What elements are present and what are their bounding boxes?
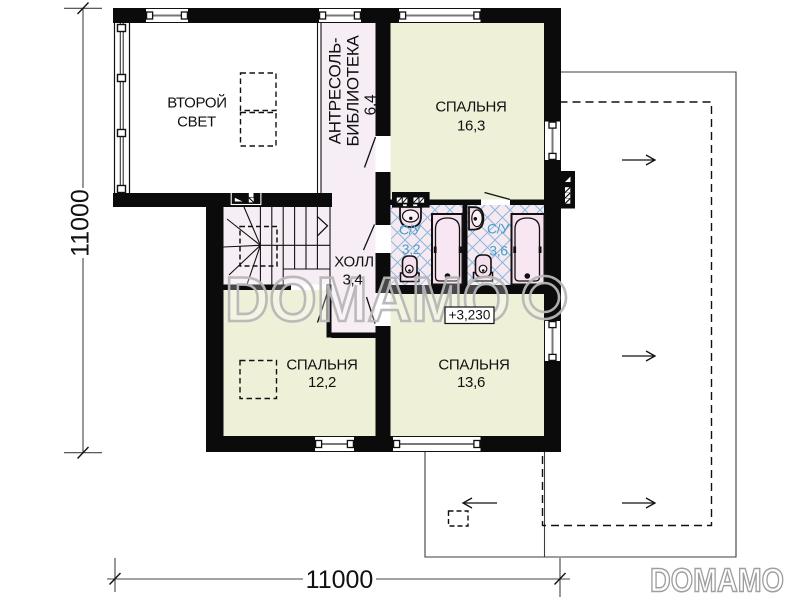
svg-text:3,6: 3,6 <box>489 243 508 259</box>
svg-text:6,4: 6,4 <box>363 94 380 115</box>
svg-text:DOMAMO: DOMAMO <box>650 562 784 599</box>
svg-text:3,2: 3,2 <box>402 241 421 257</box>
svg-text:DOMAMO: DOMAMO <box>225 265 510 335</box>
svg-text:С/У: С/У <box>399 222 421 238</box>
svg-text:12,2: 12,2 <box>308 374 336 391</box>
svg-text:СПАЛЬНЯ: СПАЛЬНЯ <box>435 99 506 116</box>
svg-text:АНТРЕСОЛЬ-: АНТРЕСОЛЬ- <box>326 38 345 145</box>
svg-text:16,3: 16,3 <box>457 118 485 135</box>
svg-text:СПАЛЬНЯ: СПАЛЬНЯ <box>286 357 357 374</box>
svg-text:3,4: 3,4 <box>343 272 363 289</box>
svg-text:СПАЛЬНЯ: СПАЛЬНЯ <box>438 357 509 374</box>
svg-text:БИБЛИОТЕКА: БИБЛИОТЕКА <box>344 34 363 146</box>
svg-text:С/У: С/У <box>487 221 509 237</box>
svg-text:11000: 11000 <box>306 566 374 594</box>
svg-text:ВТОРОЙ: ВТОРОЙ <box>167 94 226 112</box>
svg-text:СВЕТ: СВЕТ <box>177 114 216 131</box>
svg-text:ХОЛЛ: ХОЛЛ <box>334 254 374 271</box>
svg-text:11000: 11000 <box>67 189 95 257</box>
svg-text:13,6: 13,6 <box>457 374 485 391</box>
svg-text:+3,230: +3,230 <box>449 308 491 323</box>
